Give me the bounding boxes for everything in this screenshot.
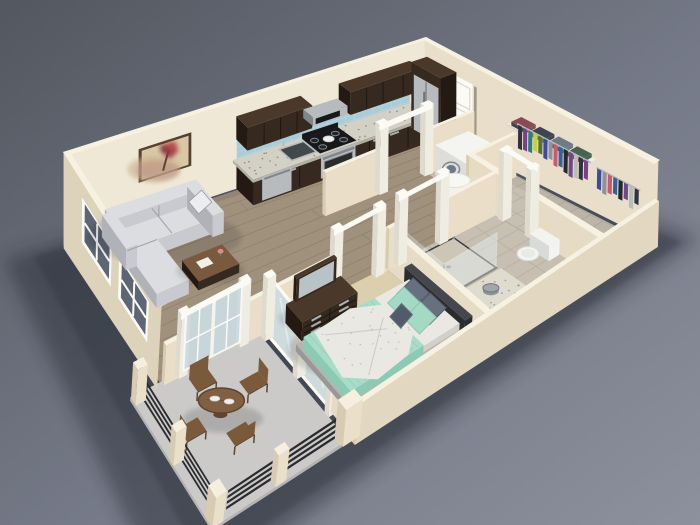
patio-chair-right-leg bbox=[248, 395, 249, 404]
scene-svg bbox=[0, 0, 700, 525]
flower-bloom bbox=[218, 249, 224, 254]
comforter-speckle bbox=[408, 329, 410, 330]
floorplan-3d-render bbox=[0, 0, 700, 525]
rug-speckle bbox=[494, 281, 496, 283]
comforter-speckle bbox=[380, 335, 382, 336]
hanging-clothes bbox=[569, 152, 574, 179]
hanging-clothes bbox=[608, 174, 613, 195]
counter-fleck bbox=[365, 125, 367, 126]
laundry-wall-a-end bbox=[322, 170, 325, 216]
hanging-clothes bbox=[584, 160, 588, 181]
counter-fleck bbox=[263, 153, 265, 154]
comforter-speckle bbox=[388, 341, 390, 342]
laundry-door-frame-post-r-front bbox=[425, 103, 434, 176]
closet-door-frame-post-r-front bbox=[530, 165, 540, 238]
comforter-speckle bbox=[372, 309, 374, 310]
plate-1 bbox=[210, 396, 220, 401]
comforter-speckle bbox=[395, 332, 397, 333]
hanging-clothes bbox=[634, 188, 639, 205]
laundry-door-frame-post-r-side bbox=[420, 103, 425, 176]
counter-fleck bbox=[358, 139, 360, 140]
closet-door-frame-post-l-front bbox=[503, 148, 513, 222]
sofa-arm-left-front bbox=[126, 244, 137, 270]
counter-fleck bbox=[389, 111, 391, 112]
rug-speckle bbox=[490, 302, 492, 304]
counter-fleck bbox=[262, 158, 264, 159]
burner bbox=[319, 145, 327, 149]
counter-fleck bbox=[396, 111, 398, 112]
comforter-speckle bbox=[395, 348, 397, 349]
hanging-clothes bbox=[548, 141, 552, 160]
patio-chair-front-leg bbox=[254, 435, 255, 443]
comforter-speckle bbox=[398, 341, 400, 342]
hanging-clothes bbox=[629, 185, 634, 209]
counter-fleck bbox=[277, 157, 279, 158]
comforter-speckle bbox=[380, 348, 382, 349]
artwork-rose-wash bbox=[136, 161, 180, 181]
counter-fleck bbox=[313, 155, 315, 156]
hanging-clothes bbox=[564, 149, 568, 174]
hanging-clothes bbox=[523, 128, 527, 152]
comforter-speckle bbox=[369, 325, 371, 326]
rug-speckle bbox=[517, 285, 519, 287]
rug-speckle bbox=[482, 281, 484, 283]
hanging-clothes bbox=[538, 136, 542, 155]
counter-fleck bbox=[248, 161, 250, 162]
counter-fleck bbox=[364, 136, 366, 137]
artwork-blossom bbox=[160, 145, 168, 151]
comforter-speckle bbox=[360, 363, 362, 364]
counter-fleck bbox=[403, 107, 405, 108]
comforter-speckle bbox=[351, 364, 353, 365]
comforter-speckle bbox=[322, 334, 324, 335]
comforter-speckle bbox=[359, 344, 361, 345]
counter-fleck bbox=[249, 167, 251, 168]
comforter-speckle bbox=[328, 339, 330, 340]
hanging-clothes bbox=[553, 144, 557, 168]
comforter-speckle bbox=[341, 323, 343, 324]
hanging-clothes bbox=[533, 133, 537, 152]
comforter-speckle bbox=[349, 343, 351, 344]
comforter-speckle bbox=[344, 358, 346, 359]
sofa-arm-right-front bbox=[213, 212, 224, 238]
comforter-speckle bbox=[372, 343, 374, 344]
toilet-seat bbox=[521, 249, 535, 258]
burner bbox=[340, 137, 348, 141]
rug-speckle bbox=[504, 280, 506, 282]
hanging-clothes bbox=[528, 130, 532, 153]
hanging-clothes bbox=[597, 168, 602, 190]
burner bbox=[311, 138, 319, 142]
hanging-clothes bbox=[574, 154, 578, 179]
counter-fleck bbox=[359, 136, 361, 137]
artwork-blossom bbox=[166, 152, 174, 158]
counter-fleck bbox=[244, 162, 246, 163]
counter-fleck bbox=[358, 129, 360, 130]
rug-speckle bbox=[493, 304, 495, 306]
patio-chair-front-leg bbox=[234, 447, 235, 455]
hanging-clothes bbox=[579, 157, 583, 181]
counter-fleck bbox=[265, 152, 267, 153]
rug-speckle bbox=[501, 292, 503, 294]
hanging-clothes bbox=[602, 171, 607, 195]
counter-fleck bbox=[345, 125, 347, 126]
counter-fleck bbox=[269, 160, 271, 161]
counter-fleck bbox=[255, 173, 257, 174]
patio-chair-left-leg bbox=[205, 431, 206, 439]
counter-fleck bbox=[254, 170, 256, 171]
patio-chair-back-leg bbox=[197, 392, 198, 401]
pot bbox=[323, 136, 334, 142]
counter-fleck bbox=[275, 164, 277, 165]
plate-2 bbox=[224, 399, 234, 404]
bath-door-frame-post-r-front bbox=[440, 171, 450, 246]
patio-chair-right-leg bbox=[267, 384, 268, 393]
counter-fleck bbox=[373, 123, 375, 124]
hanging-clothes bbox=[624, 183, 629, 201]
hanging-clothes bbox=[613, 177, 618, 195]
rug-speckle bbox=[508, 290, 510, 292]
hanging-clothes bbox=[518, 125, 522, 150]
hanging-clothes bbox=[559, 146, 563, 168]
hanging-clothes bbox=[618, 180, 623, 201]
laundry-door-frame-post-l-side bbox=[375, 122, 380, 195]
comforter-speckle bbox=[392, 323, 394, 324]
comforter-speckle bbox=[407, 327, 409, 328]
comforter-speckle bbox=[353, 317, 355, 318]
counter-fleck bbox=[259, 167, 261, 168]
hanging-clothes bbox=[543, 138, 547, 160]
laundry-door-frame-post-l-front bbox=[380, 122, 389, 195]
burner bbox=[331, 131, 339, 135]
comforter-speckle bbox=[370, 312, 372, 313]
basket-top bbox=[483, 284, 499, 292]
